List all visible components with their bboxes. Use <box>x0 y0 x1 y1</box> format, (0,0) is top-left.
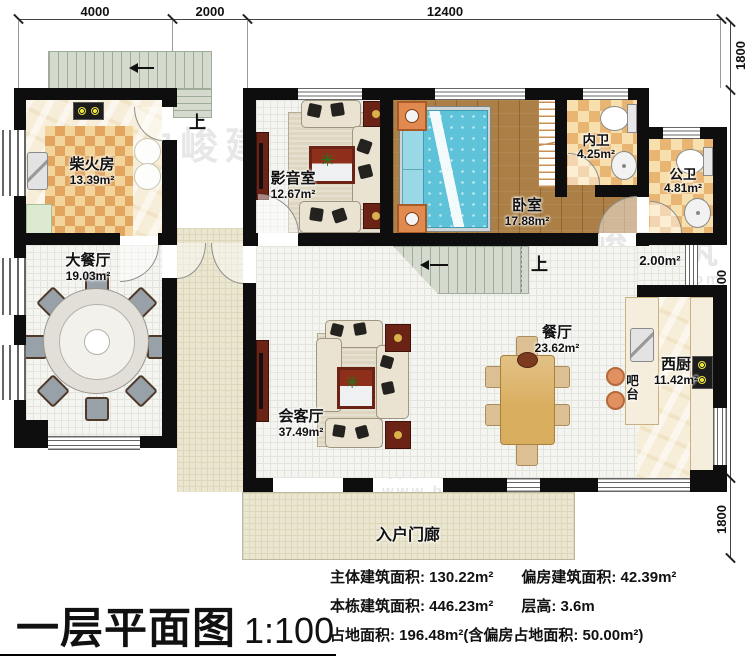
stairs-direction-line <box>430 264 448 266</box>
nightstand <box>397 101 427 131</box>
room-label-neiwei: 内卫 4.25m² <box>546 133 646 162</box>
window <box>663 127 700 139</box>
plan-title-text: 一层平面图 <box>16 594 236 656</box>
stairs-direction-arrow <box>129 63 138 73</box>
bathroom-sink <box>684 198 711 228</box>
window <box>598 478 690 492</box>
window <box>298 88 362 100</box>
stats-line-3: 占地面积: 196.48m²(含偏房占地面积: 50.00m²) <box>330 624 643 645</box>
room-label-woshi: 卧室 17.88m² <box>472 198 582 228</box>
window <box>583 88 628 100</box>
stats-line-2: 本栋建筑面积: 446.23m² 层高: 3.6m <box>330 595 595 616</box>
stats-line-1: 主体建筑面积: 130.22m² 偏房建筑面积: 42.39m² <box>330 566 676 587</box>
toilet-tank <box>627 104 637 133</box>
stairs-up-label-exterior: 上 <box>189 108 206 133</box>
floor-plan: 柏峻建筑 柏峻建筑 www.baijunjz.com 柏峻建筑 www.baij… <box>0 0 750 667</box>
dining-table <box>500 355 555 445</box>
stat-annex-area: 偏房建筑面积: 42.39m² <box>521 566 676 587</box>
stairs-direction-line <box>138 67 154 69</box>
dim-right-1800a: 1800 <box>733 26 748 86</box>
stat-building-area: 本栋建筑面积: 446.23m² <box>330 595 493 616</box>
bar-stool <box>606 367 625 386</box>
nightstand <box>397 204 427 234</box>
room-label-yingyinshi: 影音室 12.67m² <box>238 171 348 201</box>
window <box>2 130 26 196</box>
plant-icon: ✳ <box>345 373 359 393</box>
room-label-chaihuofang: 柴火房 13.39m² <box>37 157 147 187</box>
window <box>507 478 540 492</box>
room-label-gongwei: 公卫 4.81m² <box>633 167 733 196</box>
dimension-line-top <box>18 19 721 20</box>
room-label-canting: 餐厅 23.62m² <box>502 325 612 355</box>
dining-table-round <box>43 288 149 394</box>
stat-floor-height: 层高: 3.6m <box>521 595 594 616</box>
stairs-up-label-interior: 上 <box>531 250 548 275</box>
toilet <box>600 106 629 131</box>
plant-icon: ✳ <box>320 150 335 171</box>
sofa <box>299 201 361 233</box>
dim-top-4000: 4000 <box>60 4 130 19</box>
window <box>2 345 26 400</box>
stat-main-area: 主体建筑面积: 130.22m² <box>330 566 493 587</box>
side-table <box>385 421 411 449</box>
porch-label: 入户门廊 <box>338 527 478 545</box>
room-label-dacanting: 大餐厅 19.03m² <box>33 253 143 283</box>
entrance-porch <box>242 492 575 560</box>
bar-counter-label: 吧台 <box>624 374 638 401</box>
storage-box <box>26 204 52 234</box>
plan-scale: 1:100 <box>244 610 334 652</box>
stat-footprint: 占地面积: 196.48m²(含偏房占地面积: 50.00m²) <box>330 624 643 645</box>
window <box>2 258 26 315</box>
room-label-nook-area: 2.00m² <box>620 254 700 269</box>
room-label-huiketing: 会客厅 37.49m² <box>246 409 356 439</box>
window <box>48 436 140 450</box>
title-underline <box>0 654 336 656</box>
window <box>435 88 525 100</box>
side-table <box>385 324 411 352</box>
bar-stool <box>606 391 625 410</box>
window <box>713 408 727 465</box>
wood-stove <box>73 102 104 120</box>
dining-chair <box>516 442 538 466</box>
plan-title: 一层平面图 1:100 <box>16 594 334 656</box>
dim-top-2000: 2000 <box>175 4 245 19</box>
room-label-xichu: 西厨 11.42m² <box>626 357 726 387</box>
stairs-direction-arrow <box>420 260 429 270</box>
dim-right-1800b: 1800 <box>714 490 729 550</box>
stairs-break-line <box>521 246 522 292</box>
dining-chair <box>85 397 109 421</box>
dim-top-12400: 12400 <box>395 4 495 19</box>
